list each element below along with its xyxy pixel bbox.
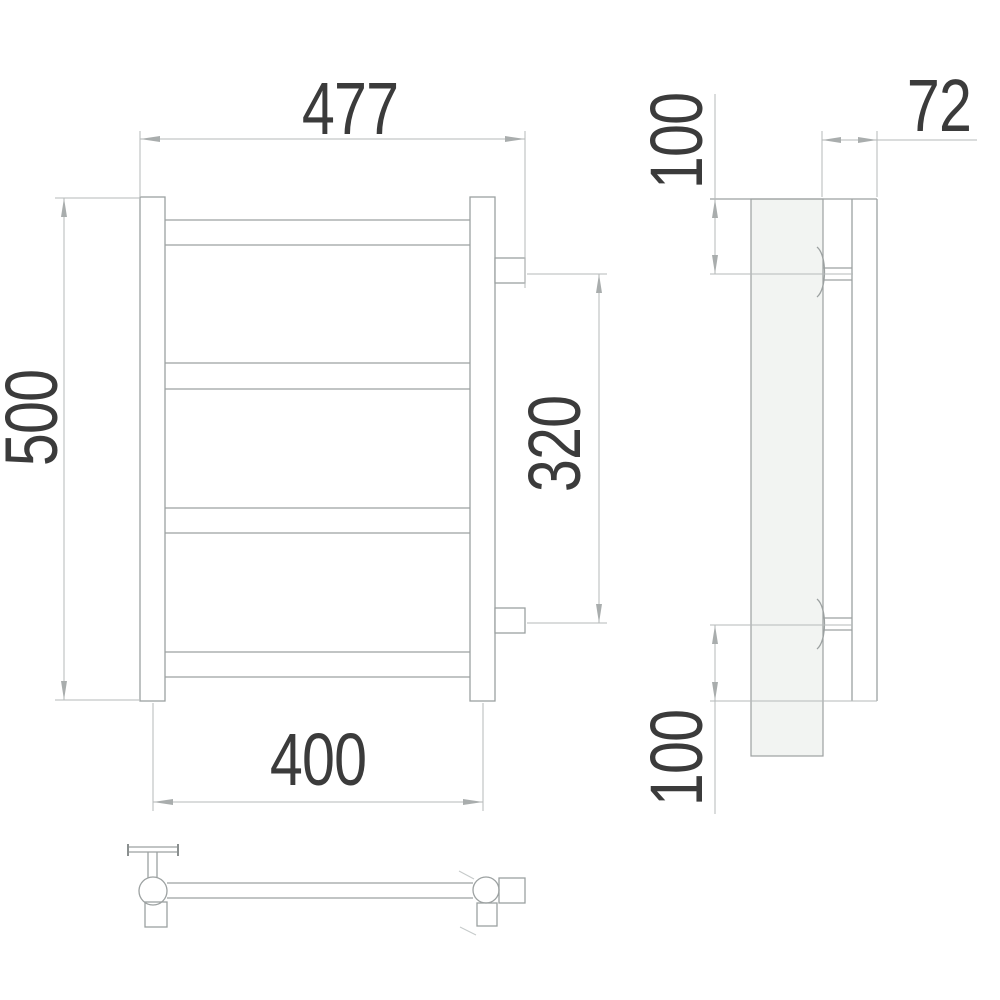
side-wall-plate xyxy=(852,199,877,701)
bottom-rail-tube xyxy=(167,883,473,898)
front-view xyxy=(140,197,525,701)
bottom-right-post-section xyxy=(473,877,499,903)
front-top-connector xyxy=(495,258,525,283)
dim-100-bottom-label: 100 xyxy=(636,710,719,806)
dim-mounting-centers: 400 xyxy=(153,703,483,811)
bottom-right-foot xyxy=(477,903,497,926)
dim-overall-height: 500 xyxy=(0,198,139,700)
dim-100-top-label: 100 xyxy=(636,93,719,189)
dim-72-label: 72 xyxy=(907,65,971,148)
dim-477-label: 477 xyxy=(302,68,398,151)
technical-drawing-page: 477 500 320 400 xyxy=(0,0,1000,1000)
bottom-left-bracket xyxy=(128,844,178,878)
dim-500-label: 500 xyxy=(0,370,73,466)
dim-400-label: 400 xyxy=(270,719,366,802)
bottom-leader-mark xyxy=(459,871,474,879)
bottom-leader-mark xyxy=(460,927,476,935)
front-right-post xyxy=(470,197,495,701)
dim-connection-spacing: 320 xyxy=(514,274,607,623)
bottom-right-connector xyxy=(499,878,525,903)
bottom-left-foot xyxy=(145,902,167,927)
front-rails xyxy=(165,220,470,677)
dim-depth: 72 xyxy=(822,65,977,197)
dim-320-label: 320 xyxy=(514,396,597,492)
front-left-post xyxy=(140,197,165,701)
side-view xyxy=(710,199,877,756)
dim-overall-width: 477 xyxy=(140,68,525,288)
front-bottom-connector xyxy=(495,608,525,633)
towel-rail-drawing: 477 500 320 400 xyxy=(0,0,1000,1000)
side-rail-profile xyxy=(751,199,823,756)
bottom-left-post-section xyxy=(139,877,167,905)
bottom-view xyxy=(128,844,525,935)
